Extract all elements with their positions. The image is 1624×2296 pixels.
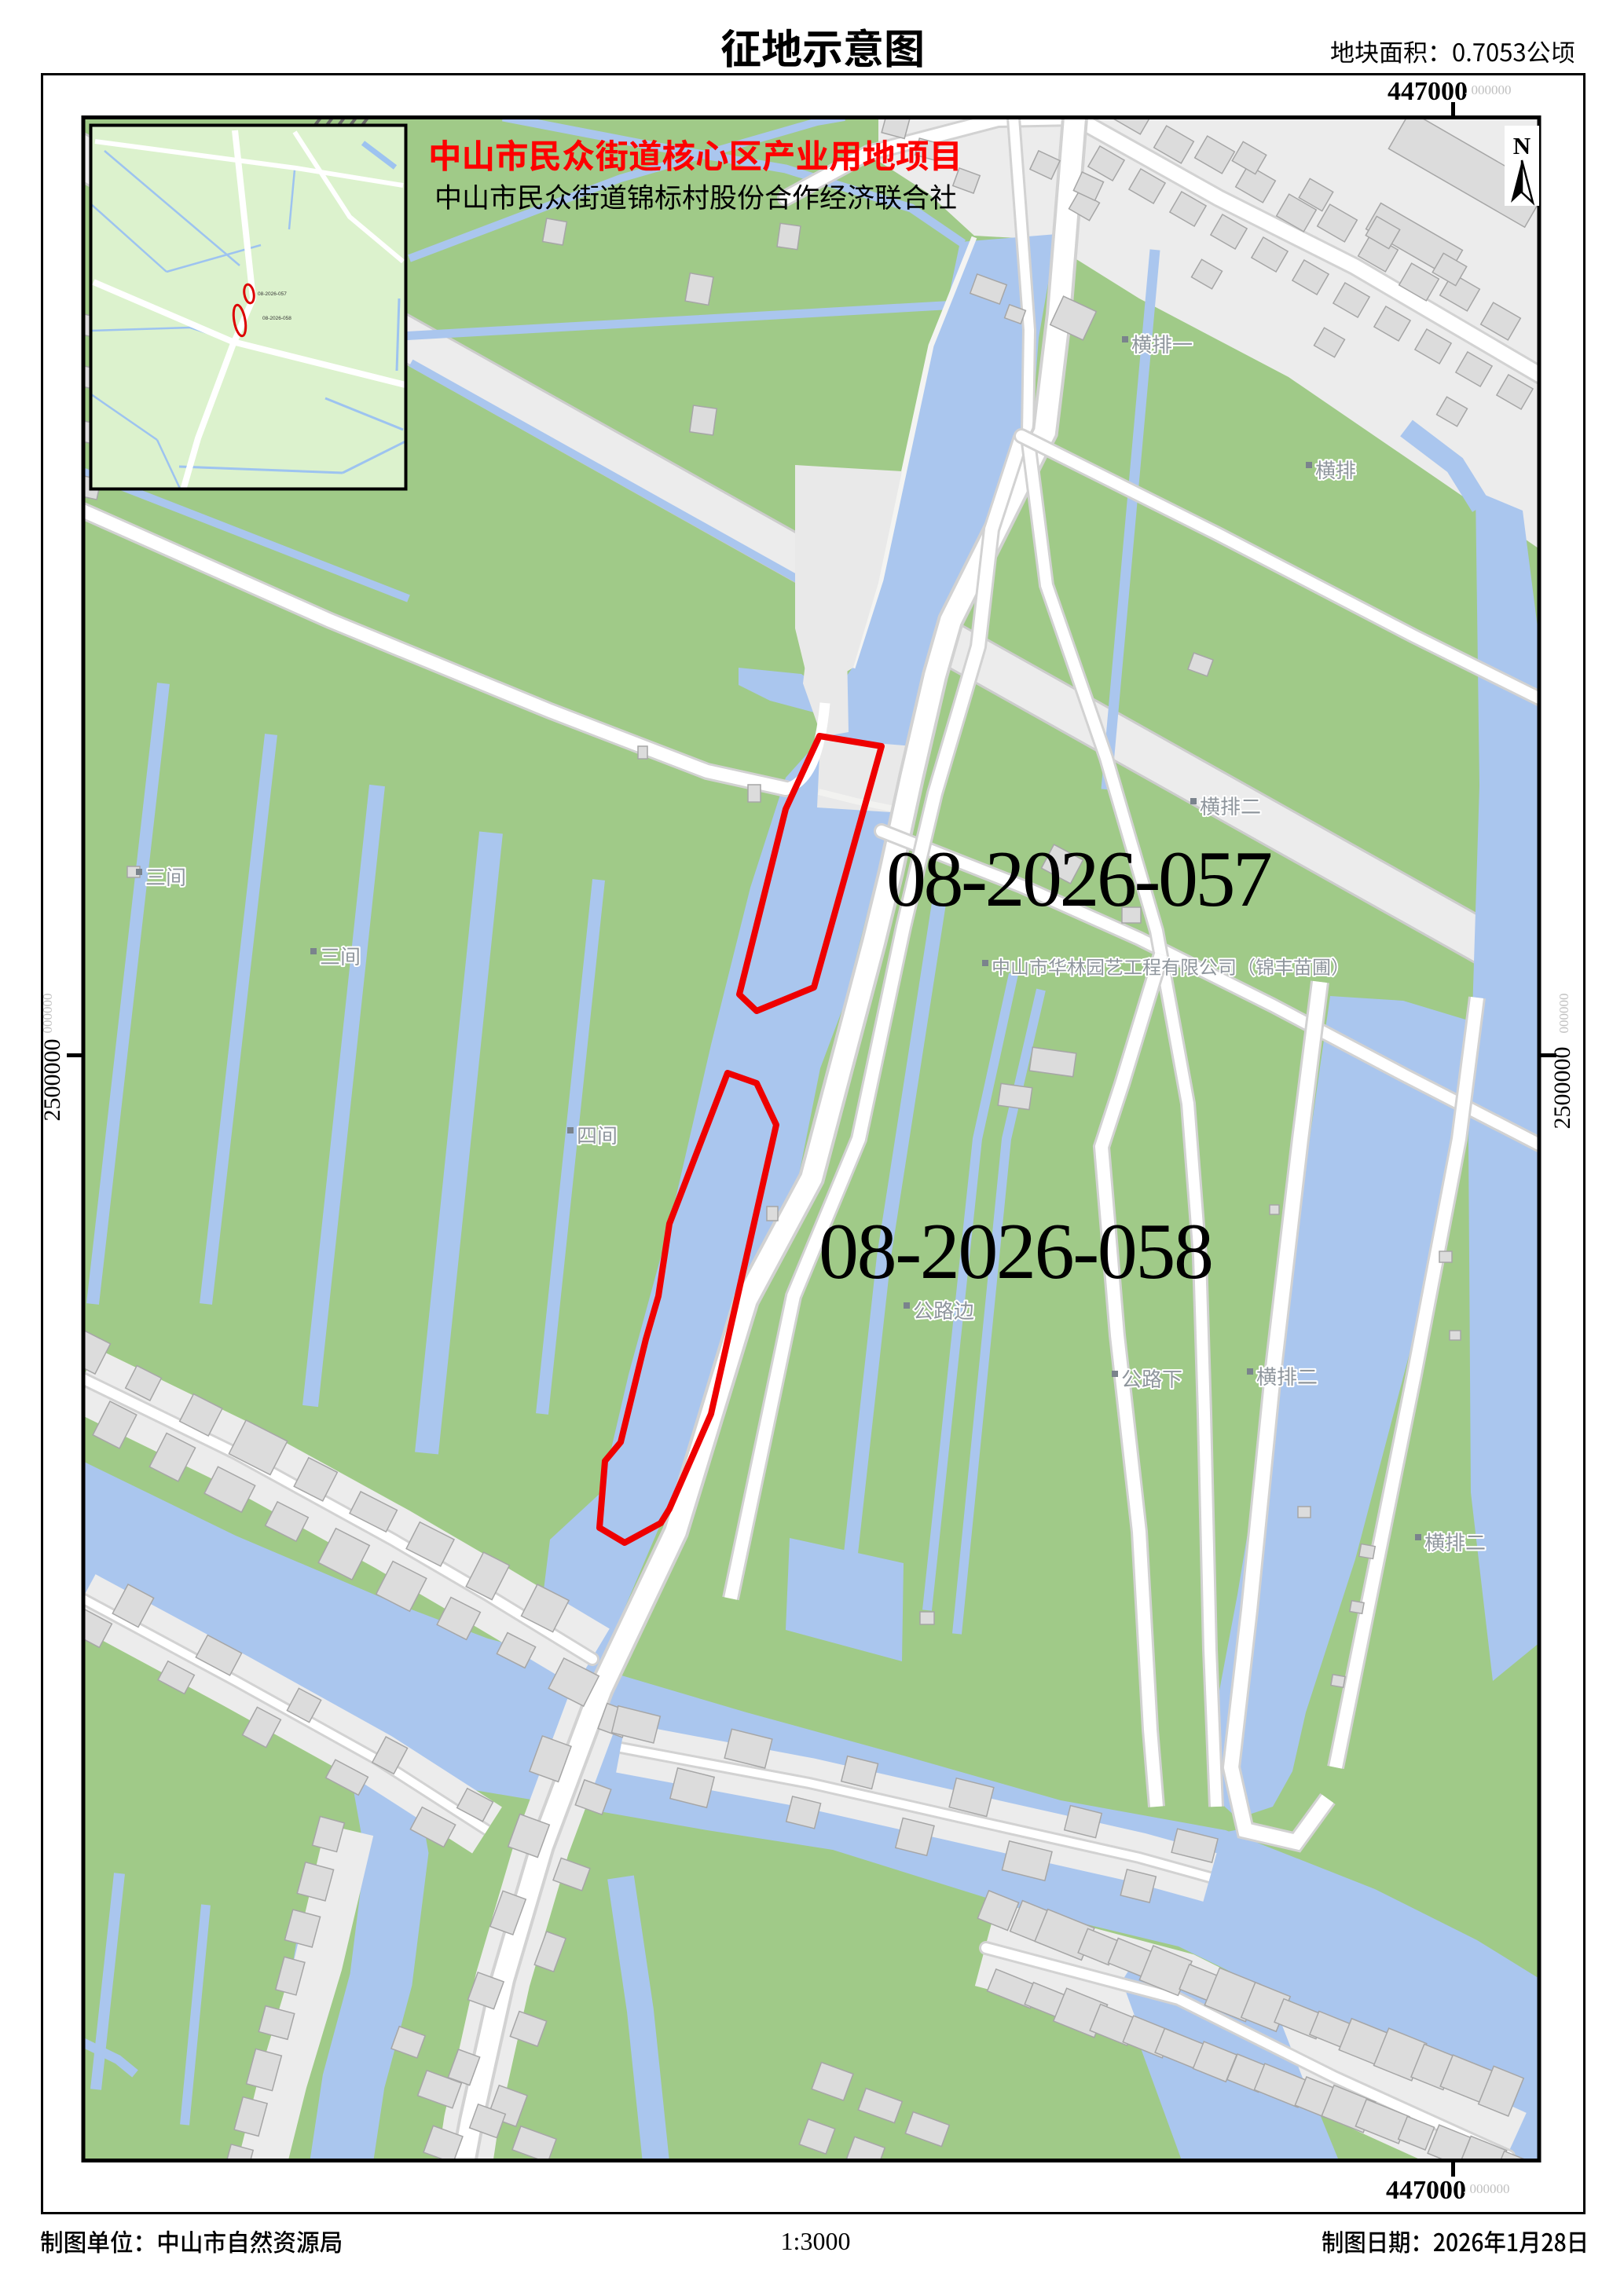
svg-text:2500000: 2500000	[1549, 1047, 1575, 1130]
svg-text:000000: 000000	[1556, 994, 1571, 1034]
svg-text:1:3000: 1:3000	[781, 2227, 851, 2255]
svg-text:08-2026-057: 08-2026-057	[258, 291, 287, 297]
svg-text:2500000: 2500000	[39, 1039, 65, 1122]
svg-text:N: N	[1513, 132, 1531, 159]
svg-text:. 000000: . 000000	[1465, 82, 1512, 97]
svg-text:447000: 447000	[1386, 2176, 1466, 2205]
svg-text:08-2026-058: 08-2026-058	[819, 1207, 1214, 1296]
svg-text:. 000000: . 000000	[1463, 2181, 1510, 2196]
svg-text:000000: 000000	[40, 994, 55, 1034]
svg-text:08-2026-057: 08-2026-057	[886, 835, 1273, 924]
svg-text:08-2026-058: 08-2026-058	[262, 316, 291, 321]
svg-text:447000: 447000	[1388, 77, 1468, 106]
